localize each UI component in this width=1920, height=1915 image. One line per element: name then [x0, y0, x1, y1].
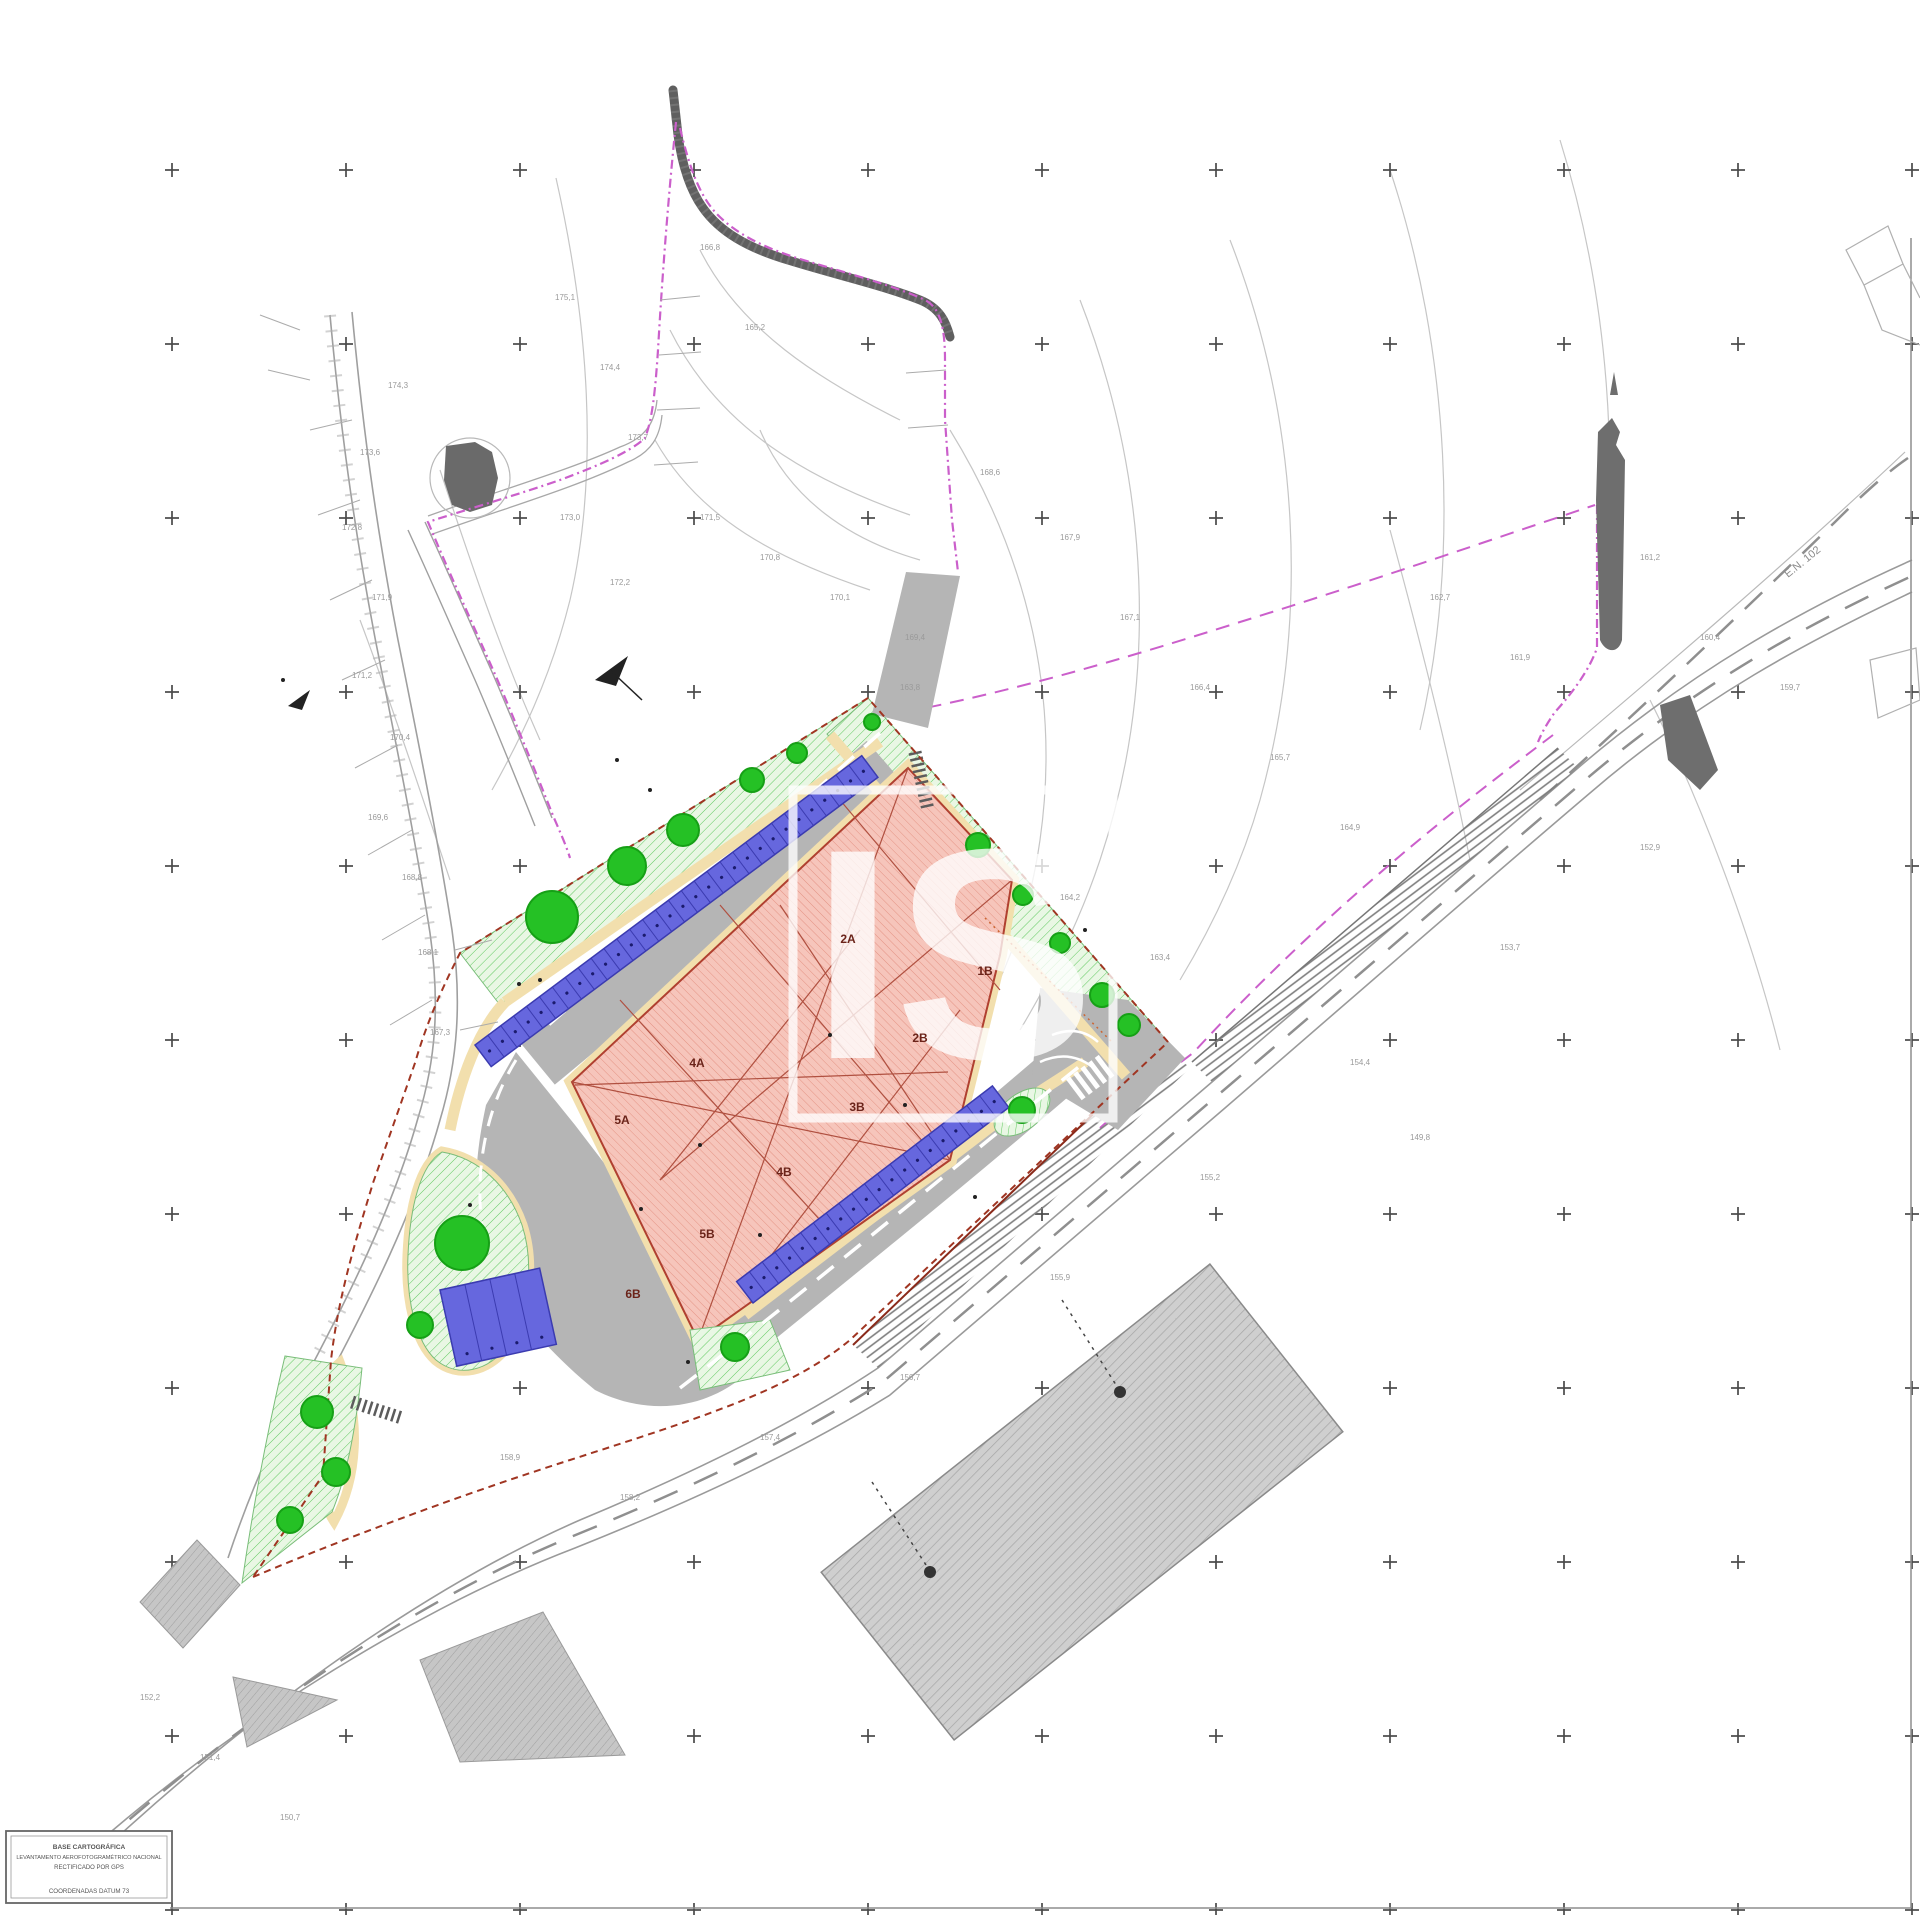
elevation-label: 155,2 — [1200, 1173, 1221, 1182]
elevation-label: 166,8 — [700, 243, 721, 252]
north-arrow — [288, 656, 642, 710]
legend-box: BASE CARTOGRÁFICA LEVANTAMENTO AEROFOTOG… — [6, 1831, 172, 1903]
elevation-label: 169,4 — [905, 633, 926, 642]
building-unit-label: 4B — [776, 1165, 792, 1179]
elevation-label: 172,2 — [610, 578, 631, 587]
elevation-label: 171,9 — [372, 593, 393, 602]
elevation-label: 171,5 — [700, 513, 721, 522]
elevation-label: 156,7 — [900, 1373, 921, 1382]
tree — [277, 1507, 303, 1533]
existing-small-buildings — [140, 1540, 625, 1762]
elevation-label: 152,9 — [1640, 843, 1661, 852]
elevation-label: 161,9 — [1510, 653, 1531, 662]
elevation-label: 167,9 — [1060, 533, 1081, 542]
building-unit-label: 6B — [625, 1287, 641, 1301]
elevation-label: 158,9 — [500, 1453, 521, 1462]
tree — [608, 847, 646, 885]
elevation-label: 168,1 — [418, 948, 439, 957]
top-retaining-wall — [673, 90, 950, 337]
tree — [407, 1312, 433, 1338]
elevation-label: 169,6 — [368, 813, 389, 822]
elevation-label: 170,8 — [760, 553, 781, 562]
tree — [740, 768, 764, 792]
tree — [787, 743, 807, 763]
elevation-label: 163,8 — [900, 683, 921, 692]
elevation-label: 152,2 — [140, 1693, 161, 1702]
elevation-label: 174,4 — [600, 363, 621, 372]
elevation-label: 172,8 — [342, 523, 363, 532]
elevation-label: 159,7 — [1780, 683, 1801, 692]
elevation-label: 165,2 — [745, 323, 766, 332]
elevation-label: 149,8 — [1410, 1133, 1431, 1142]
building-unit-label: 5A — [614, 1113, 630, 1127]
legend-line-3: RECTIFICADO POR GPS — [54, 1865, 124, 1871]
watermark-text: IS — [811, 786, 1094, 1122]
elevation-label: 167,1 — [1120, 613, 1141, 622]
elevation-label: 157,4 — [760, 1433, 781, 1442]
elevation-label: 170,4 — [390, 733, 411, 742]
building-unit-label: 2A — [840, 932, 856, 946]
elevation-label: 164,2 — [1060, 893, 1081, 902]
elevation-label: 155,9 — [1050, 1273, 1071, 1282]
road-name-label: E.N. 102 — [1782, 544, 1823, 580]
roadside-hedge — [1596, 372, 1718, 790]
elevation-label: 171,2 — [352, 671, 373, 680]
site-plan-canvas: E.N. 102 — [0, 0, 1920, 1915]
elevation-label: 160,4 — [1700, 633, 1721, 642]
site-plan-drawing: E.N. 102 — [0, 0, 1920, 1915]
elevation-label: 163,4 — [1150, 953, 1171, 962]
elevation-label: 173,7 — [628, 433, 649, 442]
tree — [1118, 1014, 1140, 1036]
building-unit-label: 3B — [849, 1100, 865, 1114]
tree — [667, 814, 699, 846]
elevation-label: 158,2 — [620, 1493, 641, 1502]
tree — [526, 891, 578, 943]
tree — [864, 714, 880, 730]
building-unit-label: 2B — [912, 1031, 928, 1045]
watermark-logo: IS — [793, 786, 1113, 1122]
elevation-label: 175,1 — [555, 293, 576, 302]
elevation-label: 170,1 — [830, 593, 851, 602]
tree — [301, 1396, 333, 1428]
building-unit-label: 5B — [699, 1227, 715, 1241]
tree — [721, 1333, 749, 1361]
elevation-label: 166,4 — [1190, 683, 1211, 692]
elevation-label: 161,2 — [1640, 553, 1661, 562]
building-unit-label: 1B — [977, 964, 993, 978]
elevation-label: 173,6 — [360, 448, 381, 457]
tree — [435, 1216, 489, 1270]
building-unit-label: 4A — [689, 1056, 705, 1070]
elevation-label: 174,3 — [388, 381, 409, 390]
elevation-label: 164,9 — [1340, 823, 1361, 832]
elevation-label: 165,7 — [1270, 753, 1291, 762]
elevation-label: 150,7 — [280, 1813, 301, 1822]
elevation-label: 167,3 — [430, 1028, 451, 1037]
tree — [322, 1458, 350, 1486]
elevation-label: 173,0 — [560, 513, 581, 522]
legend-line-1: BASE CARTOGRÁFICA — [53, 1842, 126, 1851]
legend-line-2: LEVANTAMENTO AEROFOTOGRAMÉTRICO NACIONAL — [16, 1854, 161, 1861]
elevation-label: 168,6 — [980, 468, 1001, 477]
legend-line-4: COORDENADAS DATUM 73 — [49, 1888, 130, 1895]
elevation-label: 168,8 — [402, 873, 423, 882]
elevation-label: 153,7 — [1500, 943, 1521, 952]
elevation-label: 154,4 — [1350, 1058, 1371, 1067]
elevation-label: 151,4 — [200, 1753, 221, 1762]
elevation-label: 162,7 — [1430, 593, 1451, 602]
existing-building-blob — [444, 442, 498, 512]
